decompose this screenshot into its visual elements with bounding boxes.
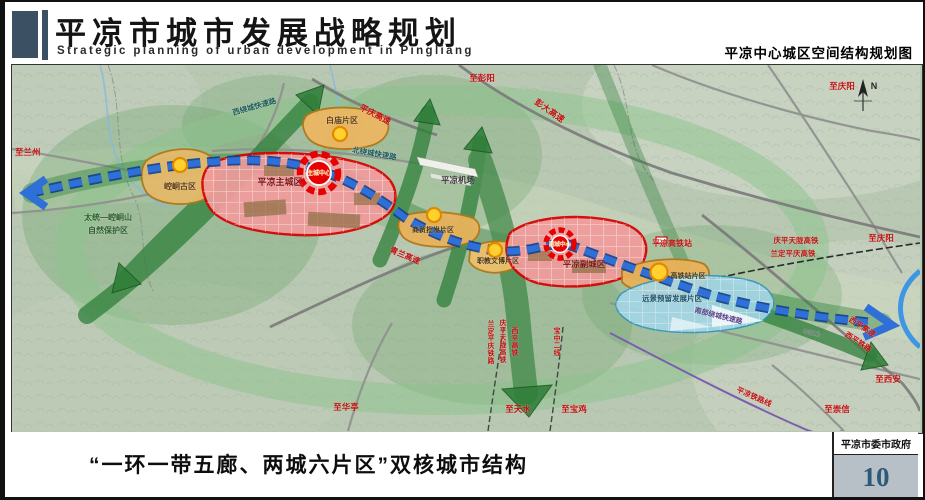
map-label-kongtong-ancient-district: 崆峒古区	[164, 181, 196, 191]
structure-caption: “一环一带五廊、两城六片区”双核城市结构	[89, 449, 528, 479]
page-number: 10	[834, 455, 918, 499]
map-label-to-huating: 至华亭	[333, 402, 359, 412]
map-label-qingping-tianlong-hsr: 庆平天陇高铁	[773, 235, 819, 245]
footer-bar: “一环一带五廊、两城六片区”双核城市结构 平凉市委市政府 10	[11, 432, 918, 499]
map-label-qingping-tianlong-hsr-vertical: 庆平天陇高铁	[499, 318, 508, 364]
map-label-nature-reserve-line2: 自然保护区	[88, 225, 128, 235]
map-label-to-tianshui: 至天水	[505, 404, 531, 414]
logo-divider-bar	[42, 10, 48, 60]
map-label-to-qingyang-east: 至庆阳	[868, 233, 894, 243]
map-label-sub-city-center: 副城中心	[549, 240, 572, 248]
map-label-airport: 平凉机场	[441, 175, 476, 185]
map-label-landing-pingqing-railway-vertical: 兰定平庆铁路	[487, 319, 496, 365]
map-label-baozhong-second-line-vertical: 宝中二线	[554, 326, 561, 357]
map-label-nature-reserve-line1: 太统—崆峒山	[83, 212, 132, 222]
planning-document-page: 平凉市城市发展战略规划 Strategic planning of urban …	[0, 0, 925, 500]
map-label-landing-pingqing-hsr: 兰定平庆高铁	[771, 248, 816, 258]
map-label-to-qingyang-north: 至庆阳	[829, 81, 855, 91]
map-label-sub-city: 平凉副城区	[563, 259, 606, 269]
logo-square	[12, 11, 38, 58]
page-info-box: 平凉市委市政府 10	[832, 432, 918, 499]
map-label-to-baoji: 至宝鸡	[561, 404, 587, 414]
page-title-english: Strategic planning of urban development …	[57, 45, 474, 57]
map-label-xiping-hsr-vertical: 西平高铁	[512, 327, 519, 357]
zone-reserve	[616, 276, 773, 333]
map-label-to-chongxin: 至崇信	[824, 404, 850, 414]
map-label-wholesale-district: 商贸批发片区	[412, 225, 454, 234]
map-label-culture-district: 职教文博片区	[477, 256, 519, 265]
map-label-to-pengyang: 至彭阳	[469, 73, 495, 83]
map-label-main-city: 平凉主城区	[257, 176, 302, 187]
map-label-hsr-district: 高铁站片区	[671, 271, 706, 280]
map-label-compass-n: N	[871, 81, 878, 91]
map-label-to-lanzhou: 至兰州	[15, 147, 41, 157]
map-label-to-xian: 至西安	[875, 374, 901, 384]
map-label-reserve-district: 远景预留发展片区	[642, 293, 702, 303]
map-label-baimiao-district: 白庙片区	[326, 115, 358, 125]
map-title: 平凉中心城区空间结构规划图	[725, 42, 914, 62]
planning-map: 至兰州至彭阳彭大高速平庆高速西绕城快速路北绕城快速路白庙片区崆峒古区平凉主城区主…	[11, 64, 923, 434]
map-label-hsr-station: 平凉高铁站	[652, 238, 692, 248]
map-label-main-city-center: 主城中心	[307, 169, 331, 177]
agency-label: 平凉市委市政府	[834, 432, 918, 455]
